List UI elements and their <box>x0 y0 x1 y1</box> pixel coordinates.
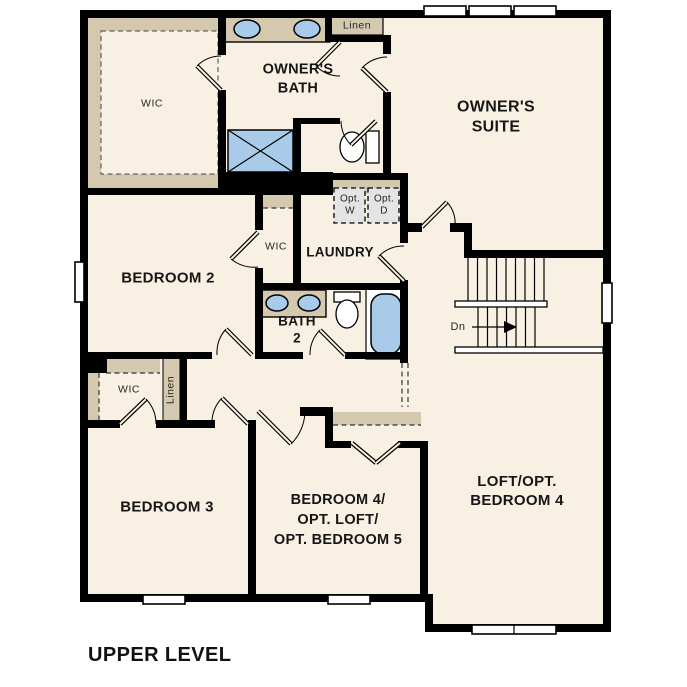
room-label-bedroom-2: BEDROOM 2 <box>121 268 215 287</box>
room-label-hall-linen: Linen <box>164 376 177 404</box>
wall-segment <box>345 352 408 359</box>
window <box>143 595 185 604</box>
wall-segment <box>293 180 301 290</box>
wall-segment <box>180 356 187 424</box>
bathtub <box>371 294 401 354</box>
room-label-owners-wic: WIC <box>141 97 163 110</box>
window <box>424 6 466 16</box>
sink <box>266 295 288 311</box>
window <box>328 595 370 604</box>
window <box>514 6 556 16</box>
wall-segment <box>218 90 226 195</box>
wall-segment <box>255 290 263 359</box>
room-label-owners-bath: OWNER'S BATH <box>263 60 334 97</box>
wall-segment <box>255 283 408 290</box>
bed3-wic-shelf-top <box>106 359 160 373</box>
bed45-closet-shelf <box>333 412 421 425</box>
wall-segment <box>325 407 333 448</box>
floor-plan: WIC OWNER'S BATH Linen OWNER'S SUITE Opt… <box>0 0 687 687</box>
room-label-linen-top: Linen <box>343 19 371 32</box>
hall-wic-shelf <box>263 195 293 208</box>
wall-segment <box>400 223 422 232</box>
floor-loft <box>425 260 611 632</box>
plan-title: UPPER LEVEL <box>88 644 231 667</box>
toilet-tank <box>366 131 379 163</box>
room-label-hall-wic: WIC <box>265 240 287 253</box>
sink <box>294 20 320 38</box>
wall-segment <box>255 352 303 359</box>
room-label-bedroom-4-5: BEDROOM 4/ OPT. LOFT/ OPT. BEDROOM 5 <box>274 490 402 550</box>
wall-segment <box>80 594 433 602</box>
window <box>75 262 84 302</box>
label-optional-washer: Opt. W <box>340 194 360 217</box>
toilet-bowl <box>336 300 358 328</box>
stair-landing <box>455 301 547 307</box>
room-label-bath-2: BATH 2 <box>278 313 316 348</box>
wall-segment <box>420 441 428 594</box>
wall-segment <box>325 35 391 42</box>
label-optional-dryer: Opt. D <box>374 194 394 217</box>
wall-segment <box>248 420 256 602</box>
wall-segment <box>80 356 107 373</box>
wall-segment <box>255 195 263 230</box>
sink <box>234 20 260 38</box>
wall-segment <box>293 173 408 180</box>
room-label-owners-suite: OWNER'S SUITE <box>457 98 535 139</box>
bed3-wic-shelf-left <box>87 373 99 424</box>
sink <box>298 295 320 311</box>
wall-segment <box>333 441 351 448</box>
wall-segment <box>383 35 391 54</box>
wall-segment <box>300 118 340 124</box>
wall-segment <box>383 92 391 180</box>
wall-segment <box>80 10 88 602</box>
window <box>602 283 612 323</box>
wall-segment <box>80 188 226 195</box>
room-label-laundry: LAUNDRY <box>306 243 374 260</box>
wall-segment <box>464 250 611 258</box>
wall-segment <box>156 420 215 428</box>
window <box>469 6 511 16</box>
wall-segment <box>218 10 226 55</box>
room-label-bed3-wic: WIC <box>118 383 140 396</box>
floor-plan-drawing <box>0 0 687 687</box>
stair-rail <box>455 347 603 353</box>
room-label-loft: LOFT/OPT. BEDROOM 4 <box>470 472 564 510</box>
wall-segment <box>400 180 408 243</box>
label-stairs-down: Dn <box>450 320 465 334</box>
room-label-bedroom-3: BEDROOM 3 <box>120 497 214 516</box>
wall-segment <box>293 118 301 173</box>
wall-segment <box>398 441 423 448</box>
wall-segment <box>400 283 408 363</box>
wall-segment <box>80 420 120 428</box>
